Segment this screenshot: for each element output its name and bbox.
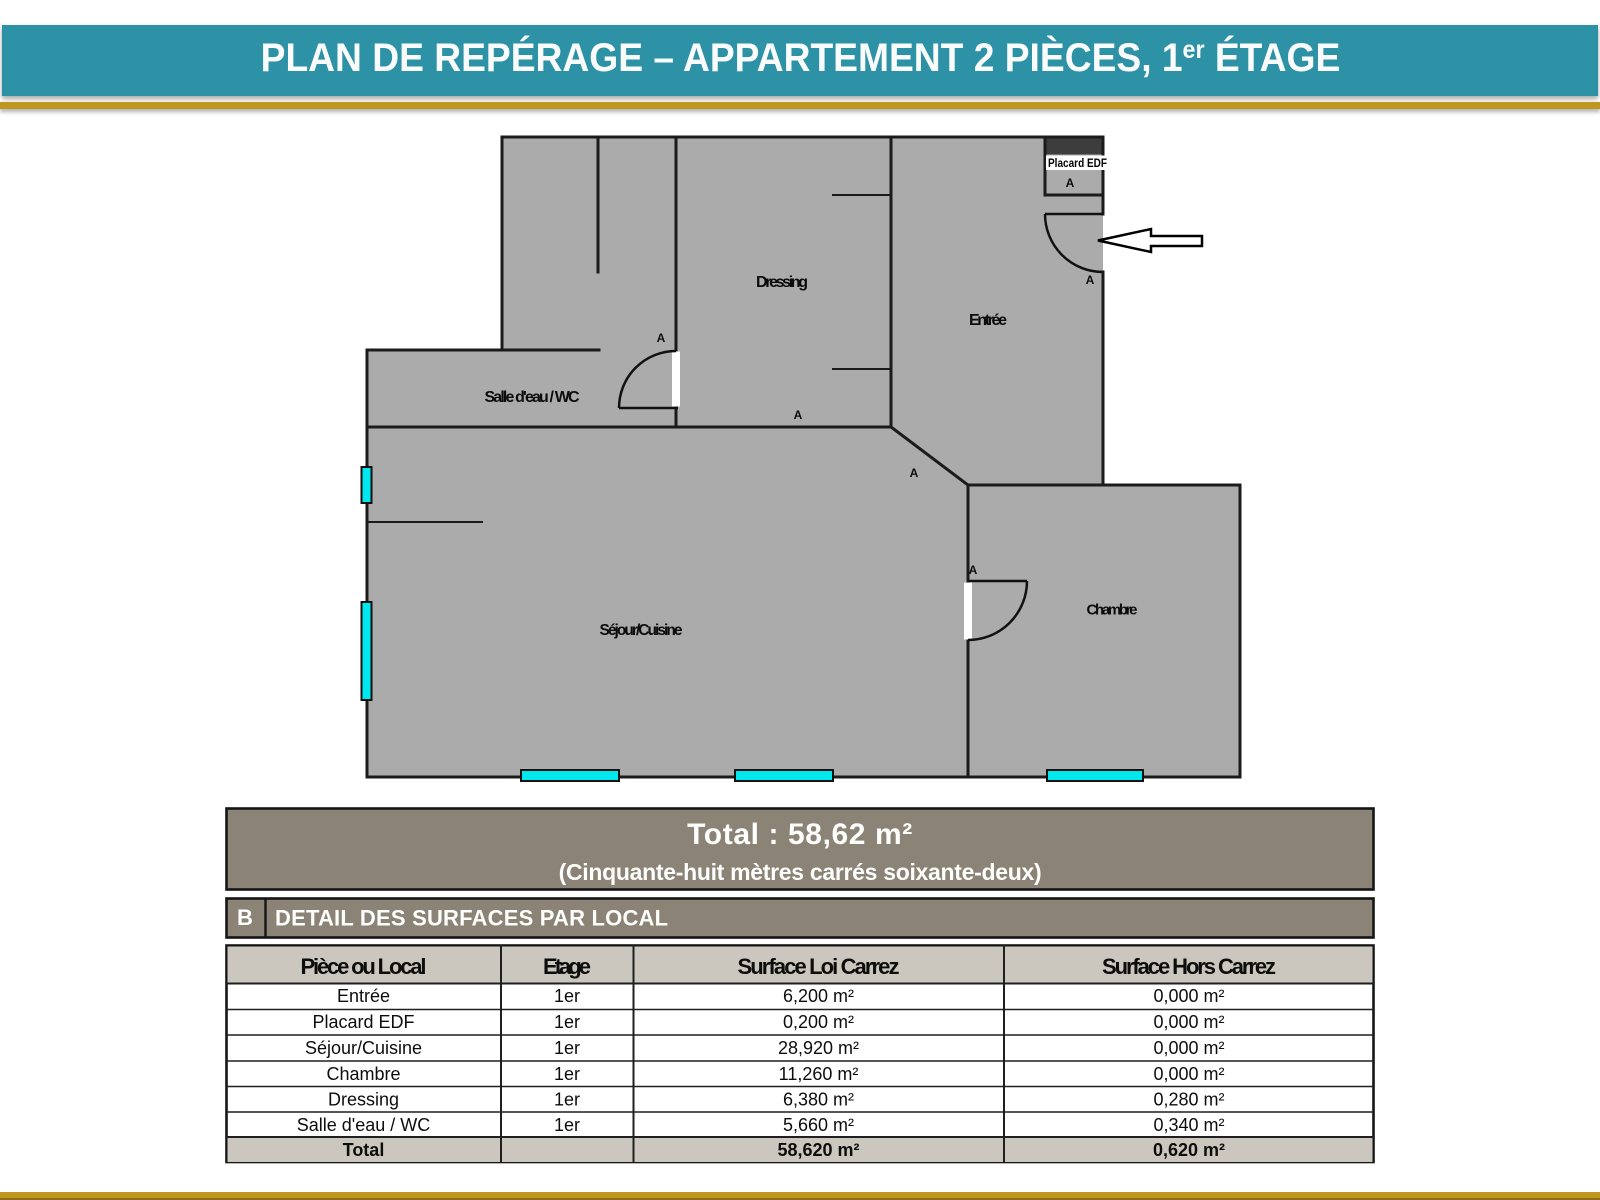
svg-text:A: A (1066, 176, 1075, 190)
svg-text:(Cinquante-huit mètres carrés: (Cinquante-huit mètres carrés soixante-d… (559, 859, 1042, 885)
svg-text:5,660 m²: 5,660 m² (783, 1115, 854, 1135)
svg-text:Placard EDF: Placard EDF (312, 1012, 414, 1032)
svg-text:A: A (1086, 273, 1095, 287)
svg-text:0,620 m²: 0,620 m² (1153, 1140, 1225, 1160)
svg-text:Etage: Etage (543, 954, 591, 979)
svg-text:A: A (657, 331, 666, 345)
svg-text:B: B (237, 905, 253, 930)
svg-text:0,000 m²: 0,000 m² (1153, 1038, 1224, 1058)
svg-text:Surface Hors Carrez: Surface Hors Carrez (1102, 954, 1276, 979)
svg-text:Chambre: Chambre (326, 1064, 400, 1084)
svg-text:Chambre: Chambre (1087, 602, 1138, 619)
svg-text:0,340 m²: 0,340 m² (1153, 1115, 1224, 1135)
svg-text:A: A (794, 408, 803, 422)
svg-text:Entrée: Entrée (337, 986, 390, 1006)
svg-text:A: A (969, 563, 978, 577)
svg-text:Salle d'eau / WC: Salle d'eau / WC (297, 1115, 431, 1135)
svg-text:6,380 m²: 6,380 m² (783, 1090, 854, 1110)
svg-text:Surface Loi Carrez: Surface Loi Carrez (738, 954, 900, 979)
svg-text:A: A (910, 466, 919, 480)
svg-text:Dressing: Dressing (756, 274, 808, 291)
svg-text:Séjour/Cuisine: Séjour/Cuisine (305, 1038, 422, 1058)
svg-text:Salle d'eau / WC: Salle d'eau / WC (485, 389, 580, 406)
svg-text:Séjour/Cuisine: Séjour/Cuisine (600, 622, 683, 639)
svg-text:Total: Total (343, 1140, 385, 1160)
svg-text:6,200 m²: 6,200 m² (783, 986, 854, 1006)
svg-text:0,000 m²: 0,000 m² (1153, 1064, 1224, 1084)
svg-text:1er: 1er (554, 1012, 580, 1032)
svg-text:1er: 1er (554, 1115, 580, 1135)
svg-text:Total : 58,62 m²: Total : 58,62 m² (687, 818, 913, 851)
svg-text:1er: 1er (554, 1090, 580, 1110)
svg-text:0,000 m²: 0,000 m² (1153, 986, 1224, 1006)
svg-text:0,200 m²: 0,200 m² (783, 1012, 854, 1032)
svg-text:28,920 m²: 28,920 m² (778, 1038, 859, 1058)
svg-text:0,000 m²: 0,000 m² (1153, 1012, 1224, 1032)
svg-text:58,620 m²: 58,620 m² (777, 1140, 859, 1160)
svg-text:1er: 1er (554, 1064, 580, 1084)
svg-text:Pièce ou Local: Pièce ou Local (301, 954, 427, 979)
svg-text:Entrée: Entrée (969, 312, 1007, 329)
svg-text:11,260 m²: 11,260 m² (779, 1064, 859, 1084)
svg-text:1er: 1er (554, 1038, 580, 1058)
svg-text:Placard EDF: Placard EDF (1048, 156, 1107, 170)
svg-text:1er: 1er (554, 986, 580, 1006)
svg-text:0,280 m²: 0,280 m² (1153, 1090, 1224, 1110)
svg-text:DETAIL DES SURFACES PAR LOCAL: DETAIL DES SURFACES PAR LOCAL (275, 906, 668, 931)
svg-text:Dressing: Dressing (328, 1090, 399, 1110)
